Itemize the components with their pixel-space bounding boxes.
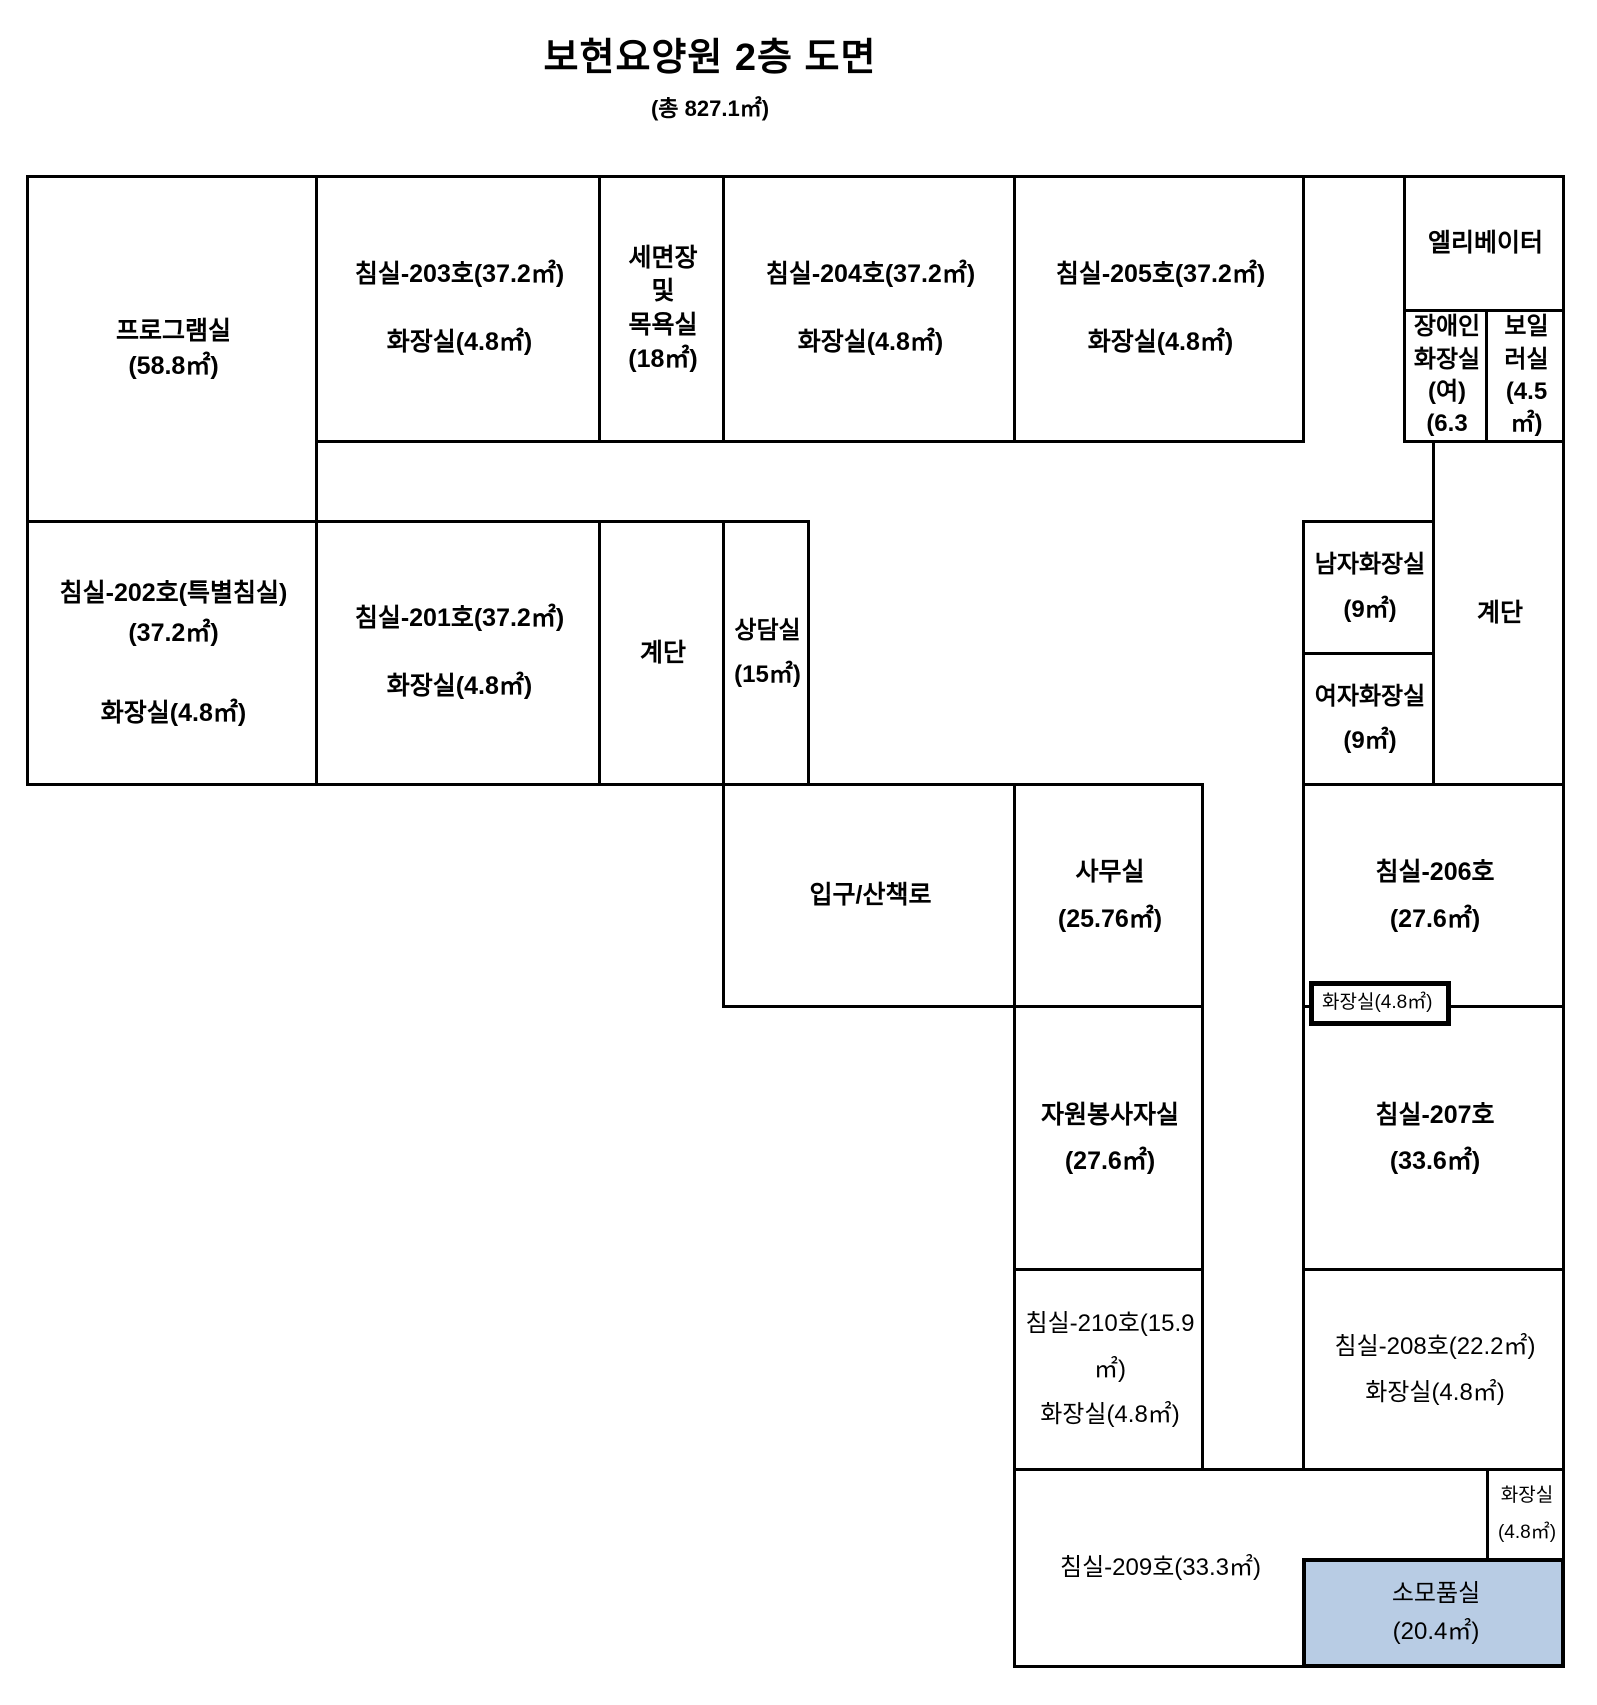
room-office-line-1: (25.76㎡) bbox=[1016, 896, 1204, 942]
room-office-line-0: 사무실 bbox=[1016, 849, 1204, 895]
room-mens-toilet-label: 남자화장실(9㎡) bbox=[1305, 523, 1435, 652]
room-program-room-line-1: (58.8㎡) bbox=[29, 349, 318, 384]
room-bedroom-208-line-1: 화장실(4.8㎡) bbox=[1305, 1370, 1565, 1416]
room-stairs-left-line-0: 계단 bbox=[601, 636, 725, 671]
room-washroom-bathroom-line-0: 세면장 bbox=[601, 242, 725, 276]
room-bedroom-206-line-1: (27.6㎡) bbox=[1305, 896, 1565, 942]
room-bedroom-210: 침실-210호(15.9㎡)화장실(4.8㎡) bbox=[1013, 1268, 1204, 1471]
room-bedroom-204-label: 침실-204호(37.2㎡) 화장실(4.8㎡) bbox=[725, 178, 1016, 440]
room-bedroom-202-special: 침실-202호(특별침실)(37.2㎡) 화장실(4.8㎡) bbox=[26, 520, 318, 786]
room-bedroom-210-label: 침실-210호(15.9㎡)화장실(4.8㎡) bbox=[1016, 1271, 1204, 1468]
room-supply-room-label: 소모품실(20.4㎡) bbox=[1306, 1562, 1566, 1664]
total-area-label: (총 827.1㎡) bbox=[544, 91, 877, 123]
room-bedroom-205: 침실-205호(37.2㎡) 화장실(4.8㎡) bbox=[1013, 175, 1305, 443]
room-washroom-bathroom-label: 세면장및목욕실(18㎡) bbox=[601, 178, 725, 440]
room-toilet-corner-line-0: 화장실 bbox=[1489, 1478, 1565, 1514]
room-bedroom-203: 침실-203호(37.2㎡) 화장실(4.8㎡) bbox=[315, 175, 601, 443]
room-mens-toilet-line-0: 남자화장실 bbox=[1305, 543, 1435, 587]
room-bedroom-202-special-label: 침실-202호(특별침실)(37.2㎡) 화장실(4.8㎡) bbox=[29, 523, 318, 783]
room-womens-toilet-line-1: (9㎡) bbox=[1305, 719, 1435, 763]
room-boiler-room-line-0: 보일 bbox=[1488, 311, 1565, 343]
room-stairs-left-label: 계단 bbox=[601, 523, 725, 783]
room-office-label: 사무실(25.76㎡) bbox=[1016, 786, 1204, 1005]
room-bedroom-203-line-1 bbox=[318, 292, 601, 326]
room-bedroom-209-line-0: 침실-209호(33.3㎡) bbox=[1016, 1551, 1305, 1585]
room-disabled-toilet-female-label: 장애인화장실(여)(6.3 bbox=[1406, 312, 1488, 440]
room-counseling-room-label: 상담실(15㎡) bbox=[725, 523, 810, 783]
room-bedroom-204-line-0: 침실-204호(37.2㎡) bbox=[725, 258, 1016, 292]
room-bedroom-203-line-2: 화장실(4.8㎡) bbox=[318, 326, 601, 360]
room-volunteer-room-line-1: (27.6㎡) bbox=[1016, 1138, 1204, 1184]
room-bedroom-201-label: 침실-201호(37.2㎡) 화장실(4.8㎡) bbox=[318, 523, 601, 783]
room-toilet-mid-label: 화장실(4.8㎡) bbox=[1314, 986, 1461, 1021]
room-washroom-bathroom: 세면장및목욕실(18㎡) bbox=[598, 175, 725, 443]
room-office: 사무실(25.76㎡) bbox=[1013, 783, 1204, 1008]
room-bedroom-207-label: 침실-207호(33.6㎡) bbox=[1305, 1008, 1565, 1268]
room-bedroom-208: 침실-208호(22.2㎡)화장실(4.8㎡) bbox=[1302, 1268, 1565, 1471]
room-disabled-toilet-female-line-2: (여) bbox=[1406, 376, 1488, 408]
room-entrance-walkway-label: 입구/산책로 bbox=[725, 786, 1016, 1005]
room-volunteer-room-line-0: 자원봉사자실 bbox=[1016, 1092, 1204, 1138]
room-bedroom-207-line-0: 침실-207호 bbox=[1305, 1092, 1565, 1138]
room-stairs-right-label: 계단 bbox=[1435, 443, 1565, 783]
room-bedroom-210-line-0: 침실-210호(15.9 bbox=[1016, 1301, 1204, 1347]
room-counseling-room: 상담실(15㎡) bbox=[722, 520, 810, 786]
room-mens-toilet-line-1: (9㎡) bbox=[1305, 588, 1435, 632]
room-supply-room: 소모품실(20.4㎡) bbox=[1302, 1558, 1565, 1668]
room-bedroom-201-line-1 bbox=[318, 636, 601, 670]
room-stairs-right-line-0: 계단 bbox=[1435, 596, 1565, 631]
room-bedroom-205-line-0: 침실-205호(37.2㎡) bbox=[1016, 258, 1305, 292]
wall-segment-top-wall-gap bbox=[1302, 175, 1406, 178]
room-bedroom-210-line-2: 화장실(4.8㎡) bbox=[1016, 1392, 1204, 1438]
room-toilet-corner: 화장실(4.8㎡) bbox=[1486, 1468, 1565, 1561]
room-bedroom-203-label: 침실-203호(37.2㎡) 화장실(4.8㎡) bbox=[318, 178, 601, 440]
room-bedroom-208-label: 침실-208호(22.2㎡)화장실(4.8㎡) bbox=[1305, 1271, 1565, 1468]
room-mens-toilet: 남자화장실(9㎡) bbox=[1302, 520, 1435, 655]
room-bedroom-206-label: 침실-206호(27.6㎡) bbox=[1305, 786, 1565, 1005]
room-supply-room-line-1: (20.4㎡) bbox=[1306, 1613, 1566, 1651]
room-bedroom-204-line-1 bbox=[725, 292, 1016, 326]
room-stairs-left: 계단 bbox=[598, 520, 725, 786]
room-elevator: 엘리베이터 bbox=[1403, 175, 1565, 312]
room-bedroom-207: 침실-207호(33.6㎡) bbox=[1302, 1005, 1565, 1271]
room-disabled-toilet-female-line-1: 화장실 bbox=[1406, 344, 1488, 376]
room-elevator-line-0: 엘리베이터 bbox=[1406, 226, 1565, 261]
room-disabled-toilet-female: 장애인화장실(여)(6.3 bbox=[1403, 309, 1488, 443]
room-boiler-room-label: 보일러실(4.5㎡) bbox=[1488, 312, 1565, 440]
room-boiler-room-line-3: ㎡) bbox=[1488, 408, 1565, 440]
room-volunteer-room-label: 자원봉사자실(27.6㎡) bbox=[1016, 1008, 1204, 1268]
room-bedroom-204-line-2: 화장실(4.8㎡) bbox=[725, 326, 1016, 360]
room-bedroom-208-line-0: 침실-208호(22.2㎡) bbox=[1305, 1324, 1565, 1370]
room-volunteer-room: 자원봉사자실(27.6㎡) bbox=[1013, 1005, 1204, 1271]
floor-plan: 보현요양원 2층 도면 (총 827.1㎡) 프로그램실(58.8㎡)침실-20… bbox=[0, 0, 1597, 1705]
room-boiler-room-line-1: 러실 bbox=[1488, 344, 1565, 376]
room-program-room-line-0: 프로그램실 bbox=[29, 314, 318, 349]
room-disabled-toilet-female-line-3: (6.3 bbox=[1406, 408, 1488, 440]
room-bedroom-203-line-0: 침실-203호(37.2㎡) bbox=[318, 258, 601, 292]
room-bedroom-201-line-0: 침실-201호(37.2㎡) bbox=[318, 602, 601, 636]
room-bedroom-202-special-line-2 bbox=[29, 653, 318, 693]
room-disabled-toilet-female-line-0: 장애인 bbox=[1406, 311, 1488, 343]
room-boiler-room: 보일러실(4.5㎡) bbox=[1485, 309, 1565, 443]
room-bedroom-201: 침실-201호(37.2㎡) 화장실(4.8㎡) bbox=[315, 520, 601, 786]
room-bedroom-207-line-1: (33.6㎡) bbox=[1305, 1138, 1565, 1184]
room-bedroom-205-line-1 bbox=[1016, 292, 1305, 326]
room-boiler-room-line-2: (4.5 bbox=[1488, 376, 1565, 408]
room-bedroom-202-special-line-0: 침실-202호(특별침실) bbox=[29, 573, 318, 613]
room-washroom-bathroom-line-3: (18㎡) bbox=[601, 343, 725, 377]
room-counseling-room-line-0: 상담실 bbox=[725, 609, 810, 653]
room-entrance-walkway-line-0: 입구/산책로 bbox=[725, 878, 1016, 913]
room-bedroom-206: 침실-206호(27.6㎡) bbox=[1302, 783, 1565, 1008]
room-program-room-label: 프로그램실(58.8㎡) bbox=[29, 178, 318, 520]
room-bedroom-202-special-line-1: (37.2㎡) bbox=[29, 613, 318, 653]
title-block: 보현요양원 2층 도면 (총 827.1㎡) bbox=[544, 26, 877, 123]
room-womens-toilet: 여자화장실(9㎡) bbox=[1302, 652, 1435, 786]
room-washroom-bathroom-line-1: 및 bbox=[601, 275, 725, 309]
room-bedroom-210-line-1: ㎡) bbox=[1016, 1347, 1204, 1393]
room-entrance-walkway: 입구/산책로 bbox=[722, 783, 1016, 1008]
room-bedroom-202-special-line-3: 화장실(4.8㎡) bbox=[29, 693, 318, 733]
room-washroom-bathroom-line-2: 목욕실 bbox=[601, 309, 725, 343]
room-counseling-room-line-1: (15㎡) bbox=[725, 653, 810, 697]
room-toilet-mid-line-0: 화장실(4.8㎡) bbox=[1322, 992, 1461, 1015]
room-toilet-corner-line-1: (4.8㎡) bbox=[1489, 1515, 1565, 1551]
room-supply-room-line-0: 소모품실 bbox=[1306, 1575, 1566, 1613]
room-toilet-corner-label: 화장실(4.8㎡) bbox=[1489, 1471, 1565, 1558]
room-bedroom-206-line-0: 침실-206호 bbox=[1305, 849, 1565, 895]
room-bedroom-201-line-2: 화장실(4.8㎡) bbox=[318, 670, 601, 704]
room-program-room: 프로그램실(58.8㎡) bbox=[26, 175, 318, 523]
room-stairs-right: 계단 bbox=[1432, 440, 1565, 786]
room-bedroom-205-line-2: 화장실(4.8㎡) bbox=[1016, 326, 1305, 360]
room-toilet-mid: 화장실(4.8㎡) bbox=[1309, 981, 1451, 1026]
room-bedroom-209-label: 침실-209호(33.3㎡) bbox=[1016, 1471, 1305, 1665]
room-elevator-label: 엘리베이터 bbox=[1406, 178, 1565, 309]
room-bedroom-204: 침실-204호(37.2㎡) 화장실(4.8㎡) bbox=[722, 175, 1016, 443]
room-bedroom-205-label: 침실-205호(37.2㎡) 화장실(4.8㎡) bbox=[1016, 178, 1305, 440]
room-womens-toilet-label: 여자화장실(9㎡) bbox=[1305, 655, 1435, 783]
page-title: 보현요양원 2층 도면 bbox=[544, 26, 877, 81]
room-womens-toilet-line-0: 여자화장실 bbox=[1305, 675, 1435, 719]
